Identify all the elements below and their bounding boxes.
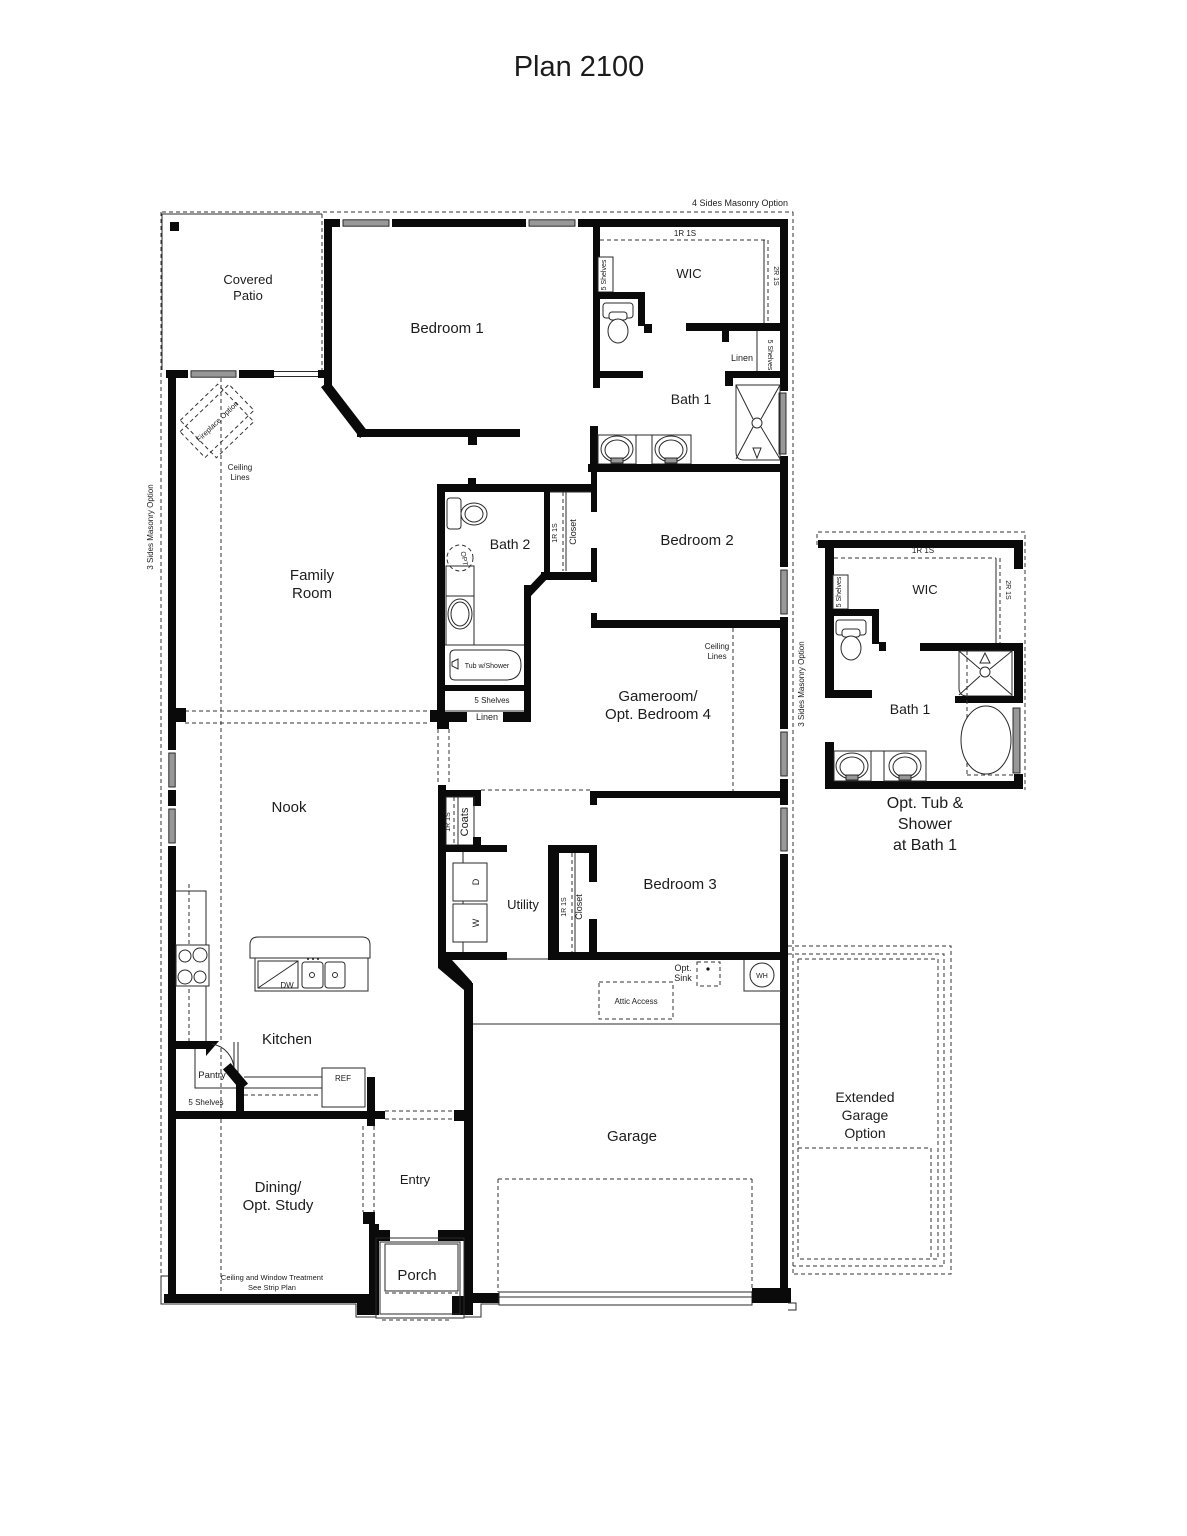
svg-text:Bath 1: Bath 1 [671,391,712,407]
svg-text:Plan 2100: Plan 2100 [514,51,645,83]
svg-text:Bath 2: Bath 2 [490,536,531,552]
svg-text:1R 1S: 1R 1S [552,523,559,543]
svg-text:Closet: Closet [568,519,578,545]
svg-text:Attic Access: Attic Access [614,997,657,1006]
svg-text:Lines: Lines [707,652,726,661]
svg-text:See Strip Plan: See Strip Plan [248,1283,296,1292]
svg-text:Patio: Patio [233,288,263,303]
svg-text:1R 1S: 1R 1S [445,812,452,832]
svg-text:REF: REF [335,1074,351,1083]
svg-text:Linen: Linen [476,712,498,722]
svg-text:Extended: Extended [835,1089,894,1105]
svg-text:Ceiling: Ceiling [228,463,252,472]
svg-text:Pantry: Pantry [198,1070,226,1081]
svg-text:5 Shelves: 5 Shelves [836,576,843,607]
svg-text:5 Shelves: 5 Shelves [601,259,608,290]
svg-text:Shower: Shower [898,816,953,833]
svg-text:Opt.: Opt. [674,963,691,973]
svg-text:Opt. Study: Opt. Study [243,1197,314,1214]
svg-text:5 Shelves: 5 Shelves [188,1098,223,1107]
svg-text:DW: DW [280,981,294,990]
svg-text:Sink: Sink [674,973,692,983]
svg-text:Family: Family [290,567,335,584]
svg-text:Utility: Utility [507,897,539,912]
svg-text:Entry: Entry [400,1172,431,1187]
svg-text:2R 1S: 2R 1S [1004,580,1011,600]
svg-text:3 Sides Masonry Option: 3 Sides Masonry Option [797,641,806,726]
svg-text:Ceiling: Ceiling [705,642,729,651]
svg-text:Coats: Coats [459,807,471,836]
svg-text:Room: Room [292,585,332,602]
svg-text:WH: WH [756,973,768,980]
svg-text:4 Sides Masonry Option: 4 Sides Masonry Option [692,198,788,208]
svg-text:Porch: Porch [397,1267,436,1284]
svg-text:Bedroom 2: Bedroom 2 [660,532,733,549]
svg-text:Opt. Bedroom 4: Opt. Bedroom 4 [605,706,711,723]
svg-text:Garage: Garage [607,1128,657,1145]
svg-text:Dining/: Dining/ [255,1179,303,1196]
svg-text:5 Shelves: 5 Shelves [474,696,509,705]
svg-text:1R 1S: 1R 1S [561,897,568,917]
svg-text:WIC: WIC [912,582,937,597]
svg-text:Opt. Tub &: Opt. Tub & [887,795,964,812]
svg-text:WIC: WIC [676,266,701,281]
svg-text:Gameroom/: Gameroom/ [618,688,698,705]
svg-text:Bath 1: Bath 1 [890,701,931,717]
svg-text:Kitchen: Kitchen [262,1031,312,1048]
svg-text:Covered: Covered [223,272,272,287]
svg-text:D: D [471,878,481,885]
svg-text:Lines: Lines [230,473,249,482]
svg-text:Nook: Nook [271,799,307,816]
svg-text:5 Shelves: 5 Shelves [766,340,773,371]
svg-text:Bedroom 3: Bedroom 3 [643,876,716,893]
svg-text:at Bath 1: at Bath 1 [893,837,957,854]
svg-text:Tub w/Shower: Tub w/Shower [465,663,510,670]
svg-text:1R 1S: 1R 1S [674,229,696,238]
svg-text:Garage: Garage [842,1107,889,1123]
svg-text:Bedroom 1: Bedroom 1 [410,320,483,337]
svg-text:Linen: Linen [731,353,753,363]
svg-text:Closet: Closet [574,894,584,920]
svg-text:Option: Option [844,1125,885,1141]
svg-text:2R 1S: 2R 1S [772,266,779,286]
svg-text:W: W [471,918,481,927]
svg-text:3 Sides Masonry Option: 3 Sides Masonry Option [146,484,155,569]
svg-text:Ceiling and Window Treatment: Ceiling and Window Treatment [221,1273,324,1282]
svg-text:1R 1S: 1R 1S [912,546,934,555]
